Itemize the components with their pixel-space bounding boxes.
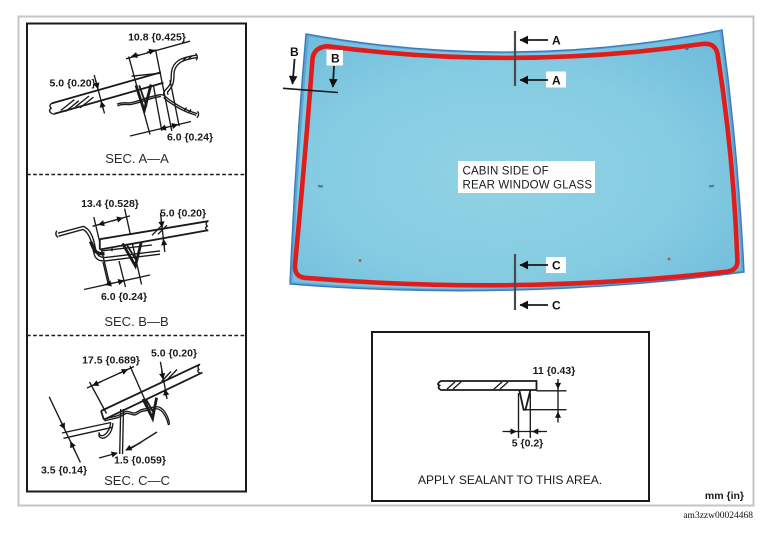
svg-text:SEC. A—A: SEC. A—A <box>105 151 169 166</box>
svg-text:6.0 {0.24}: 6.0 {0.24} <box>167 132 213 144</box>
svg-text:CABIN SIDE OF: CABIN SIDE OF <box>463 166 549 178</box>
svg-text:A: A <box>552 74 561 88</box>
svg-text:5.0 {0.20}: 5.0 {0.20} <box>160 208 206 220</box>
svg-text:17.5 {0.689}: 17.5 {0.689} <box>82 355 140 367</box>
svg-text:11 {0.43}: 11 {0.43} <box>533 365 576 377</box>
svg-text:B: B <box>290 45 299 59</box>
svg-text:APPLY SEALANT TO THIS AREA.: APPLY SEALANT TO THIS AREA. <box>418 473 602 487</box>
svg-text:6.0 {0.24}: 6.0 {0.24} <box>101 291 147 303</box>
svg-text:SEC. C—C: SEC. C—C <box>104 473 170 488</box>
svg-text:5.0 {0.20}: 5.0 {0.20} <box>50 78 96 90</box>
svg-text:5.0 {0.20}: 5.0 {0.20} <box>151 348 197 360</box>
svg-text:mm {in}: mm {in} <box>705 490 744 502</box>
svg-text:SEC. B—B: SEC. B—B <box>104 314 168 329</box>
svg-text:C: C <box>552 259 561 273</box>
svg-text:3.5 {0.14}: 3.5 {0.14} <box>41 465 87 477</box>
svg-text:13.4 {0.528}: 13.4 {0.528} <box>81 198 139 210</box>
svg-text:am3zzw00024468: am3zzw00024468 <box>683 511 753 521</box>
svg-text:10.8 {0.425}: 10.8 {0.425} <box>128 32 186 44</box>
svg-text:5 {0.2}: 5 {0.2} <box>512 438 544 450</box>
svg-text:C: C <box>552 299 561 313</box>
svg-text:1.5 {0.059}: 1.5 {0.059} <box>114 455 166 467</box>
svg-text:REAR WINDOW GLASS: REAR WINDOW GLASS <box>463 180 593 192</box>
svg-text:B: B <box>331 52 340 66</box>
svg-text:A: A <box>552 34 561 48</box>
